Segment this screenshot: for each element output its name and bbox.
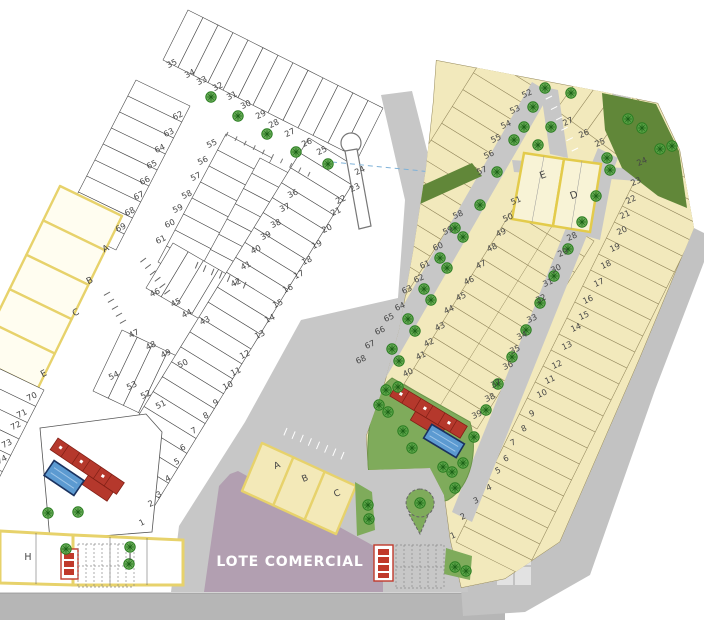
tree-icon: [262, 129, 272, 139]
tree-icon: [410, 326, 420, 336]
tree-icon: [291, 147, 301, 157]
lot-label: I: [129, 552, 132, 563]
tree-icon: [591, 191, 601, 201]
site-plan-drawing: LOTE COMERCIAL: [0, 0, 704, 620]
tree-icon: [461, 566, 471, 576]
right-guard-booth: [374, 545, 393, 581]
tree-icon: [533, 140, 543, 150]
tree-icon: [363, 500, 373, 510]
tree-icon: [403, 314, 413, 324]
commercial-lot-label: LOTE COMERCIAL: [216, 554, 363, 570]
tree-icon: [419, 284, 429, 294]
tree-icon: [426, 295, 436, 305]
tree-icon: [415, 498, 425, 508]
tree-icon: [458, 232, 468, 242]
tree-icon: [509, 135, 519, 145]
tree-icon: [566, 88, 576, 98]
bottom-road: [0, 593, 505, 620]
tree-icon: [481, 405, 491, 415]
tree-icon: [469, 432, 479, 442]
tree-icon: [206, 92, 216, 102]
tree-icon: [398, 426, 408, 436]
tree-icon: [623, 114, 633, 124]
tree-icon: [602, 153, 612, 163]
tree-icon: [450, 562, 460, 572]
tree-icon: [528, 102, 538, 112]
tree-icon: [667, 141, 677, 151]
tree-icon: [540, 83, 550, 93]
tree-icon: [450, 483, 460, 493]
tree-icon: [605, 165, 615, 175]
tree-icon: [381, 385, 391, 395]
tree-icon: [492, 167, 502, 177]
tree-icon: [383, 407, 393, 417]
tree-icon: [407, 443, 417, 453]
tree-icon: [577, 217, 587, 227]
tree-icon: [435, 253, 445, 263]
tree-icon: [323, 159, 333, 169]
tree-icon: [125, 542, 135, 552]
lot-label: H: [24, 552, 31, 563]
tree-icon: [393, 382, 403, 392]
tree-icon: [475, 200, 485, 210]
tree-icon: [447, 467, 457, 477]
tree-icon: [458, 458, 468, 468]
tree-icon: [546, 122, 556, 132]
tree-icon: [374, 400, 384, 410]
tree-icon: [233, 111, 243, 121]
tree-icon: [442, 263, 452, 273]
tree-icon: [519, 122, 529, 132]
tree-icon: [364, 514, 374, 524]
tree-icon: [637, 123, 647, 133]
tree-icon: [61, 544, 71, 554]
tree-icon: [394, 356, 404, 366]
site-plan: LOTE COMERCIAL: [0, 0, 704, 620]
tree-icon: [387, 344, 397, 354]
tree-icon: [73, 507, 83, 517]
tree-icon: [655, 144, 665, 154]
tree-icon: [43, 508, 53, 518]
